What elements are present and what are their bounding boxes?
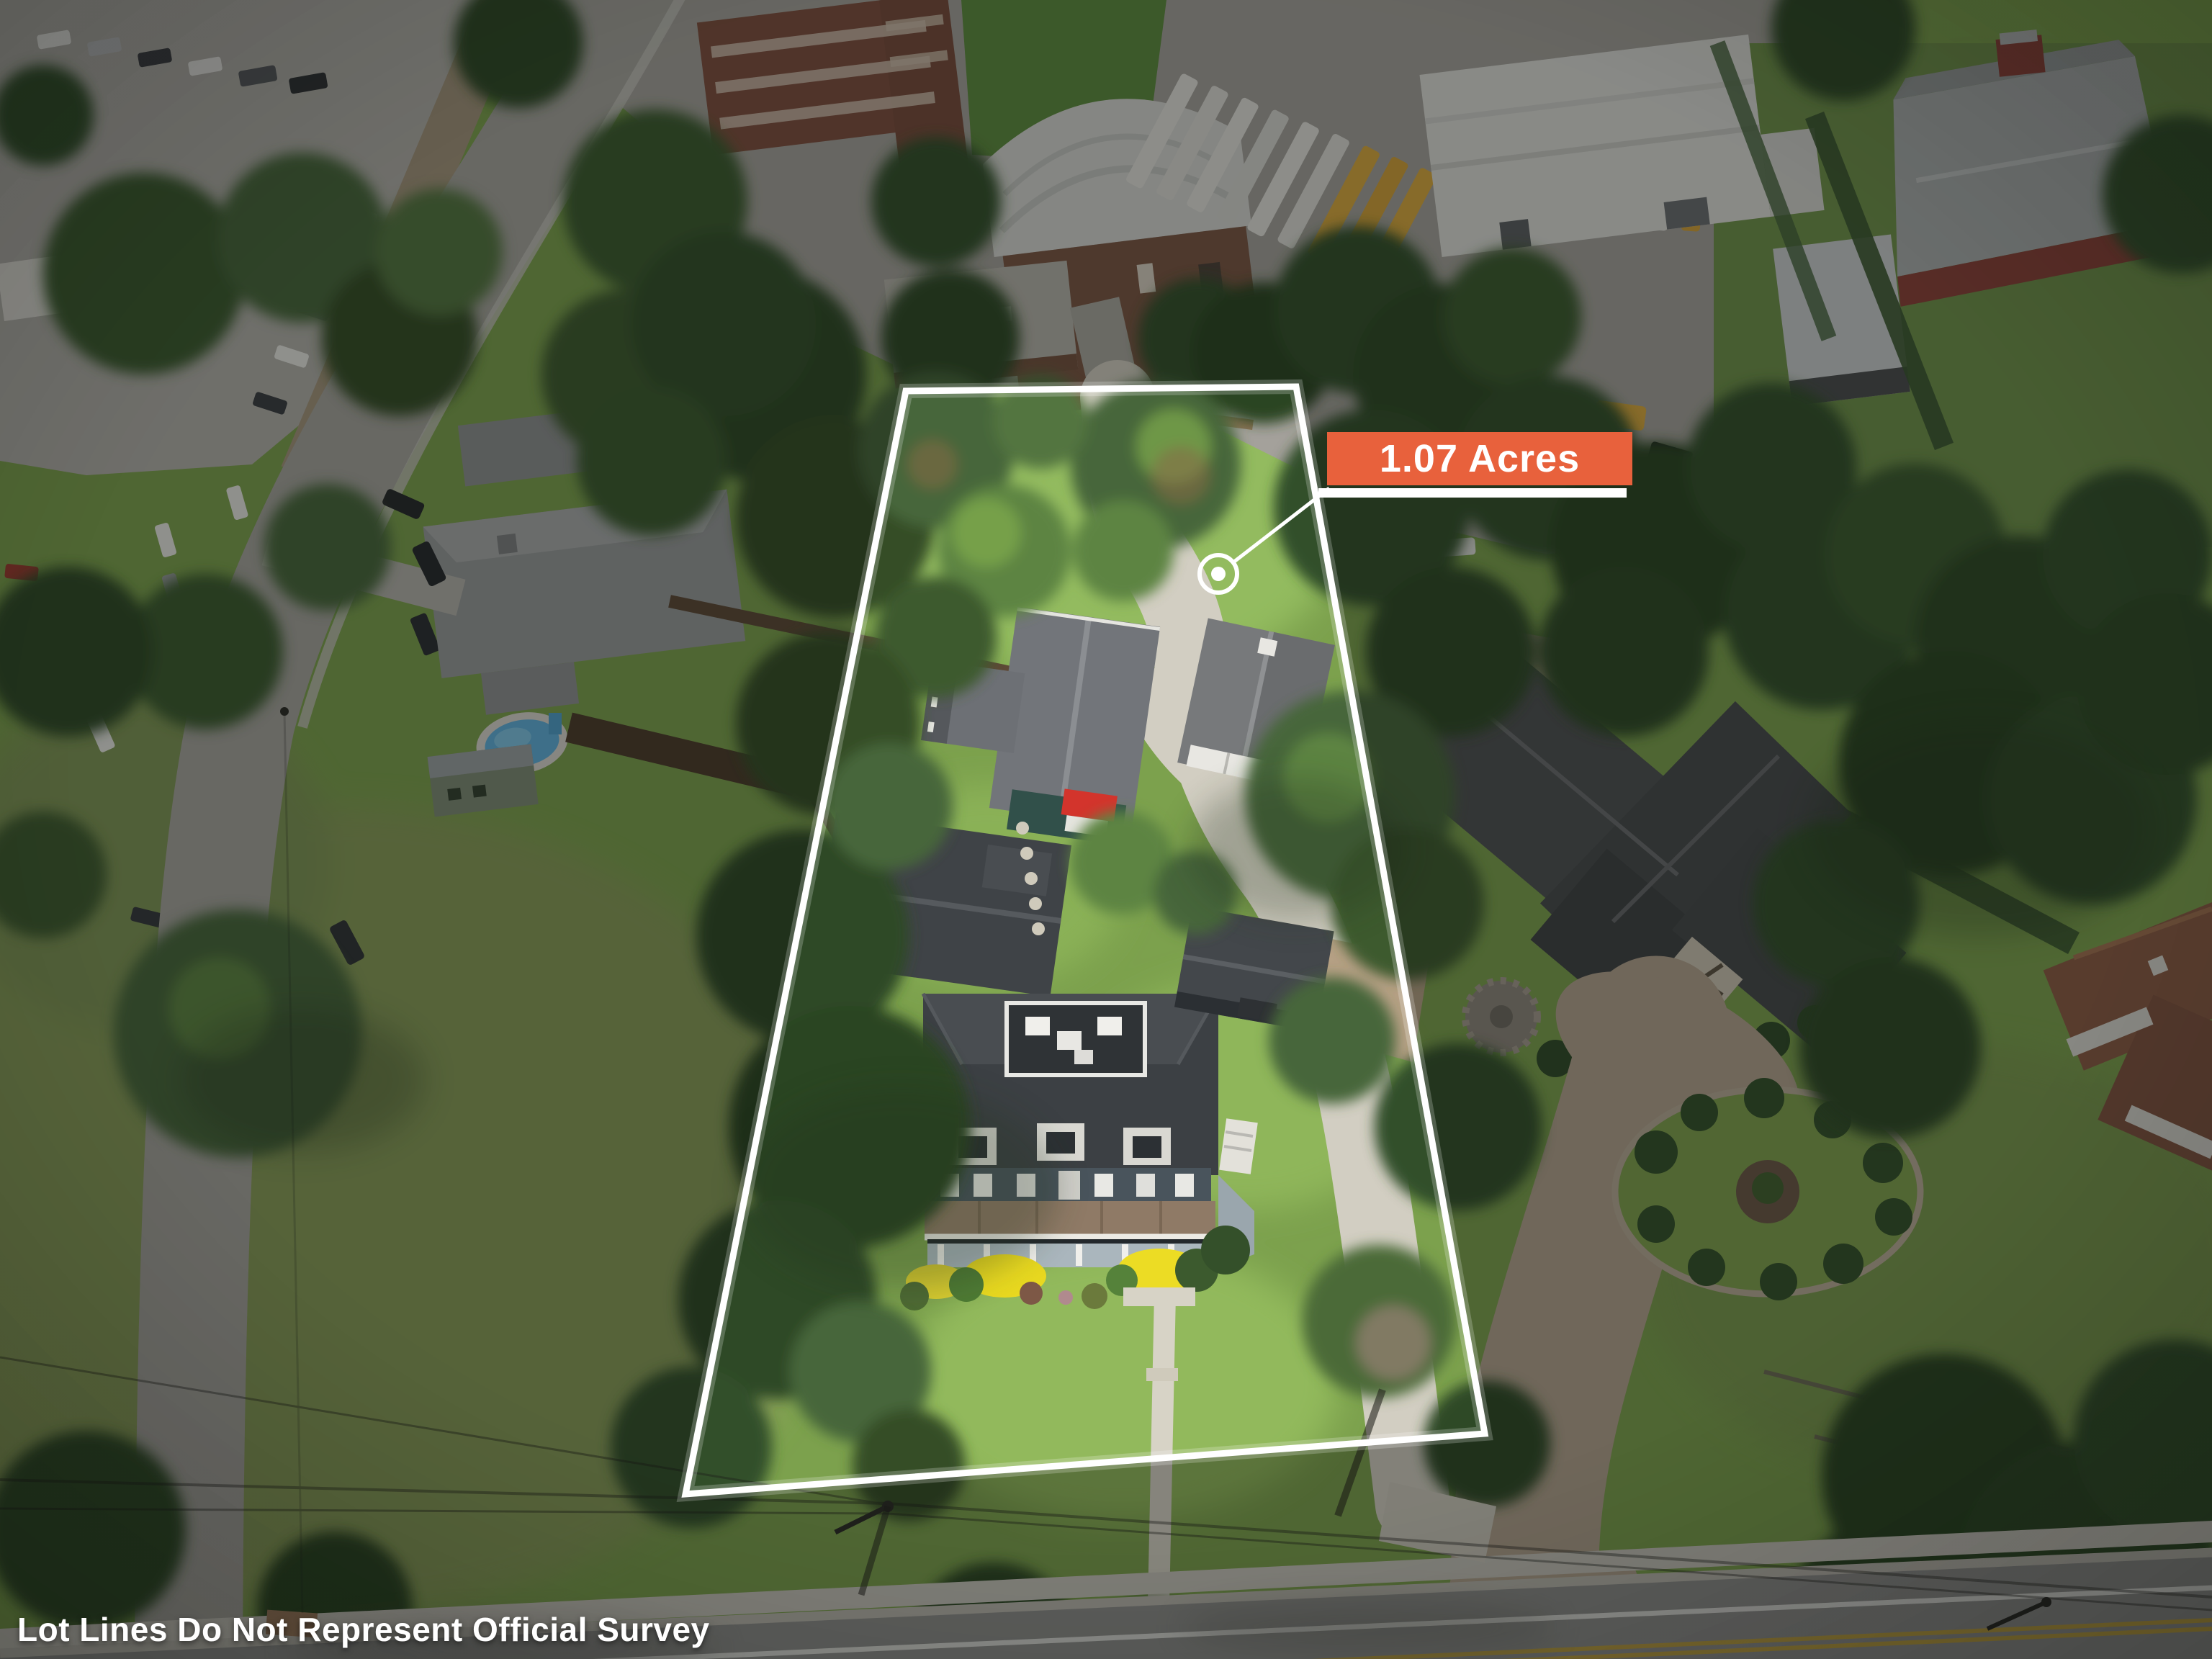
aerial-photo (0, 0, 2212, 1659)
disclaimer-text: Lot Lines Do Not Represent Official Surv… (17, 1610, 710, 1649)
screenshot-root: 1.07 Acres Lot Lines Do Not Represent Of… (0, 0, 2212, 1659)
acreage-badge-label: 1.07 Acres (1380, 436, 1580, 481)
vignette (0, 0, 2212, 1659)
acreage-badge-underline (1318, 488, 1627, 498)
acreage-badge: 1.07 Acres (1327, 432, 1632, 485)
